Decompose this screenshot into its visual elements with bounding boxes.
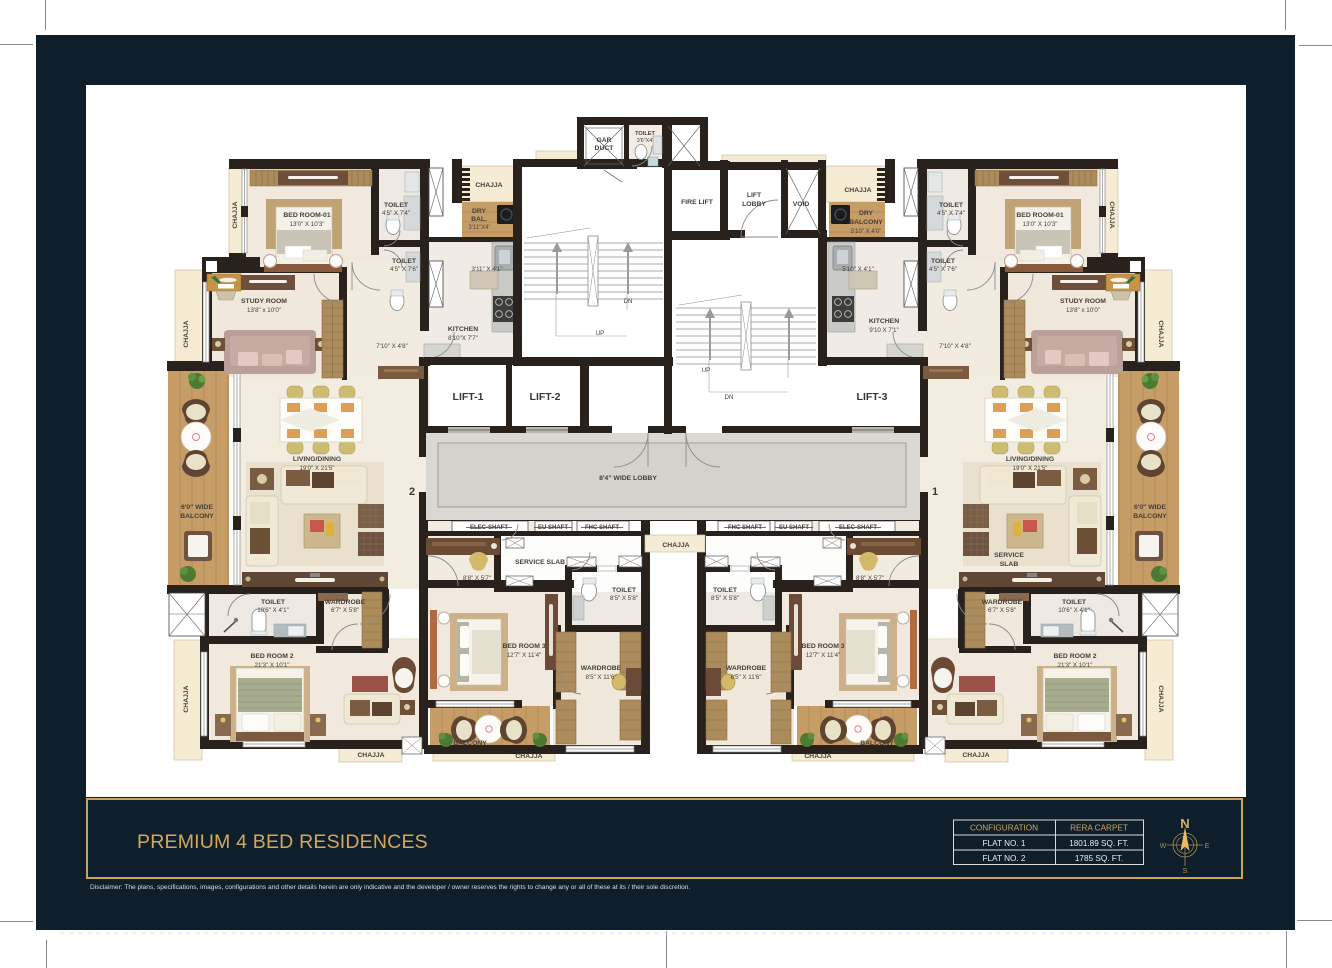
svg-text:SERVICE SLAB: SERVICE SLAB [515, 559, 565, 566]
svg-text:4'5" X 7'6": 4'5" X 7'6" [390, 266, 418, 273]
svg-text:6'7" X 5'8": 6'7" X 5'8" [331, 607, 359, 614]
svg-text:FHC SHAFT: FHC SHAFT [728, 525, 762, 531]
svg-text:BED ROOM 3: BED ROOM 3 [502, 643, 545, 650]
svg-text:CHAJJA: CHAJJA [804, 753, 831, 760]
svg-text:ELEC-SHAFT: ELEC-SHAFT [470, 525, 508, 531]
svg-text:13'0" X 10'3": 13'0" X 10'3" [1023, 221, 1058, 228]
svg-text:BAL.: BAL. [471, 216, 487, 223]
svg-text:21'3" X 10'1": 21'3" X 10'1" [255, 662, 290, 669]
svg-text:CHAJJA: CHAJJA [1108, 201, 1115, 228]
svg-text:19'0" X 21'5": 19'0" X 21'5" [300, 465, 335, 472]
svg-text:21'3" X 10'1": 21'3" X 10'1" [1058, 662, 1093, 669]
svg-text:E: E [1205, 843, 1210, 850]
svg-text:TOILET: TOILET [384, 202, 409, 209]
svg-text:CHAJJA: CHAJJA [183, 320, 190, 347]
svg-text:10'6" X 4'1": 10'6" X 4'1" [257, 607, 289, 614]
svg-text:TOILET: TOILET [713, 587, 738, 594]
svg-text:FLAT NO. 1: FLAT NO. 1 [983, 839, 1026, 848]
svg-text:3'6"X4': 3'6"X4' [637, 138, 654, 144]
svg-text:BALCONY: BALCONY [849, 219, 883, 226]
svg-text:BED ROOM-01: BED ROOM-01 [283, 212, 330, 219]
svg-text:1785 SQ. FT.: 1785 SQ. FT. [1075, 854, 1123, 863]
svg-text:TOILET: TOILET [612, 587, 637, 594]
svg-text:10'6" X 4'1": 10'6" X 4'1" [1058, 607, 1090, 614]
svg-text:13'8" x 10'0": 13'8" x 10'0" [1066, 307, 1100, 314]
svg-text:BED ROOM-01: BED ROOM-01 [1016, 212, 1063, 219]
svg-text:FIRE LIFT: FIRE LIFT [681, 199, 714, 206]
svg-text:13'0" X 10'3": 13'0" X 10'3" [290, 221, 325, 228]
svg-text:CHAJJA: CHAJJA [1157, 320, 1164, 347]
svg-text:LIFT-2: LIFT-2 [530, 391, 561, 403]
svg-text:TOILET: TOILET [939, 202, 964, 209]
svg-text:CHAJJA: CHAJJA [962, 752, 989, 759]
svg-text:7'10" X 4'8": 7'10" X 4'8" [939, 343, 971, 350]
svg-text:8'5" X 11'6": 8'5" X 11'6" [730, 674, 761, 681]
svg-text:DN: DN [624, 298, 633, 305]
svg-text:BALCONY: BALCONY [1133, 513, 1167, 520]
svg-text:1: 1 [932, 486, 938, 498]
svg-text:ELEC-SHAFT: ELEC-SHAFT [839, 525, 877, 531]
svg-text:WARDROBE: WARDROBE [325, 599, 366, 606]
svg-text:FHC SHAFT: FHC SHAFT [585, 525, 619, 531]
svg-text:TOILET: TOILET [931, 258, 956, 265]
svg-text:S: S [1183, 868, 1188, 875]
svg-text:CHAJJA: CHAJJA [1157, 685, 1164, 712]
svg-text:CHAJJA: CHAJJA [183, 685, 190, 712]
svg-text:8'5" X 5'8": 8'5" X 5'8" [610, 595, 638, 602]
svg-text:LIVING/DINING: LIVING/DINING [1006, 456, 1054, 463]
svg-text:WARDROBE: WARDROBE [726, 665, 767, 672]
svg-text:GAR: GAR [596, 137, 611, 144]
svg-text:DRY: DRY [472, 208, 487, 215]
svg-text:9'10 X 7'1": 9'10 X 7'1" [869, 327, 898, 334]
svg-text:EU SHAFT: EU SHAFT [538, 525, 568, 531]
svg-text:CHAJJA: CHAJJA [844, 187, 871, 194]
svg-text:TOILET: TOILET [392, 258, 417, 265]
svg-text:LIVING/DINING: LIVING/DINING [293, 456, 341, 463]
svg-text:LOBBY: LOBBY [742, 201, 766, 208]
svg-text:UP: UP [702, 367, 711, 374]
svg-text:Disclaimer: The plans, specifi: Disclaimer: The plans, specifications, i… [90, 884, 690, 891]
svg-text:LIFT-1: LIFT-1 [453, 391, 484, 403]
svg-text:BALCONY: BALCONY [453, 740, 487, 747]
svg-text:SERVICE: SERVICE [994, 552, 1024, 559]
svg-text:LIFT-3: LIFT-3 [857, 391, 888, 403]
svg-text:BED ROOM 2: BED ROOM 2 [250, 653, 293, 660]
svg-text:CHAJJA: CHAJJA [232, 201, 239, 228]
svg-text:13'8" x 10'0": 13'8" x 10'0" [247, 307, 281, 314]
svg-text:5'10" X 4'1": 5'10" X 4'1" [842, 266, 874, 273]
svg-text:6'7" X 5'8": 6'7" X 5'8" [988, 607, 1016, 614]
svg-text:LIFT: LIFT [747, 192, 762, 199]
svg-text:CHAJJA: CHAJJA [515, 753, 542, 760]
svg-text:12'7" X 11'4": 12'7" X 11'4" [806, 652, 841, 659]
svg-text:DRY: DRY [859, 210, 874, 217]
svg-text:TOILET: TOILET [635, 131, 655, 137]
svg-text:EU SHAFT: EU SHAFT [779, 525, 809, 531]
svg-text:PREMIUM 4 BED RESIDENCES: PREMIUM 4 BED RESIDENCES [137, 831, 428, 853]
svg-text:6'0" WIDE: 6'0" WIDE [1134, 504, 1166, 511]
svg-text:8'10"X 7'7": 8'10"X 7'7" [448, 335, 478, 342]
svg-text:12'7" X 11'4": 12'7" X 11'4" [507, 652, 542, 659]
svg-text:CHAJJA: CHAJJA [475, 182, 502, 189]
svg-text:1801.89 SQ. FT.: 1801.89 SQ. FT. [1069, 839, 1129, 848]
svg-text:8'5" X 5'8": 8'5" X 5'8" [711, 595, 739, 602]
svg-text:3'11"X4': 3'11"X4' [468, 225, 489, 231]
svg-text:CHAJJA: CHAJJA [357, 752, 384, 759]
svg-text:BALCONY: BALCONY [180, 513, 214, 520]
svg-text:SLAB: SLAB [1000, 561, 1019, 568]
svg-text:8'4" WIDE LOBBY: 8'4" WIDE LOBBY [599, 475, 657, 482]
svg-text:6'0" WIDE: 6'0" WIDE [181, 504, 213, 511]
svg-text:VOID: VOID [793, 201, 810, 208]
svg-text:STUDY ROOM: STUDY ROOM [1060, 298, 1106, 305]
svg-text:CONFIGURATION: CONFIGURATION [970, 824, 1038, 833]
svg-text:BED ROOM 2: BED ROOM 2 [1053, 653, 1096, 660]
svg-text:8'8" X 5'7": 8'8" X 5'7" [856, 575, 884, 582]
svg-text:BALCONY: BALCONY [860, 740, 894, 747]
svg-text:CHAJJA: CHAJJA [662, 542, 689, 549]
svg-text:UP: UP [596, 330, 605, 337]
svg-text:STUDY ROOM: STUDY ROOM [241, 298, 287, 305]
svg-text:8'5" X 11'6": 8'5" X 11'6" [585, 674, 616, 681]
svg-text:7'10" X 4'8": 7'10" X 4'8" [376, 343, 408, 350]
svg-text:8'8" X 5'7": 8'8" X 5'7" [463, 575, 491, 582]
svg-text:WARDROBE: WARDROBE [982, 599, 1023, 606]
svg-text:4'5" X 7'4": 4'5" X 7'4" [937, 210, 965, 217]
svg-text:BED ROOM 3: BED ROOM 3 [801, 643, 844, 650]
svg-text:5'10" X 4'0": 5'10" X 4'0" [851, 229, 882, 235]
svg-text:3'11" X 4'1": 3'11" X 4'1" [471, 266, 502, 273]
svg-text:FLAT NO. 2: FLAT NO. 2 [983, 854, 1026, 863]
svg-text:TOILET: TOILET [1062, 599, 1087, 606]
svg-text:WARDROBE: WARDROBE [581, 665, 622, 672]
svg-text:2: 2 [409, 486, 415, 498]
svg-text:W: W [1160, 843, 1167, 850]
svg-text:DN: DN [725, 394, 734, 401]
svg-text:RERA CARPET: RERA CARPET [1070, 824, 1128, 833]
svg-text:KITCHEN: KITCHEN [448, 326, 478, 333]
svg-text:TOILET: TOILET [261, 599, 286, 606]
svg-text:DUCT: DUCT [595, 145, 615, 152]
svg-text:KITCHEN: KITCHEN [869, 318, 899, 325]
svg-text:19'0" X 21'5": 19'0" X 21'5" [1013, 465, 1048, 472]
svg-text:4'5" X 7'6": 4'5" X 7'6" [929, 266, 957, 273]
svg-text:4'5" X 7'4": 4'5" X 7'4" [382, 210, 410, 217]
